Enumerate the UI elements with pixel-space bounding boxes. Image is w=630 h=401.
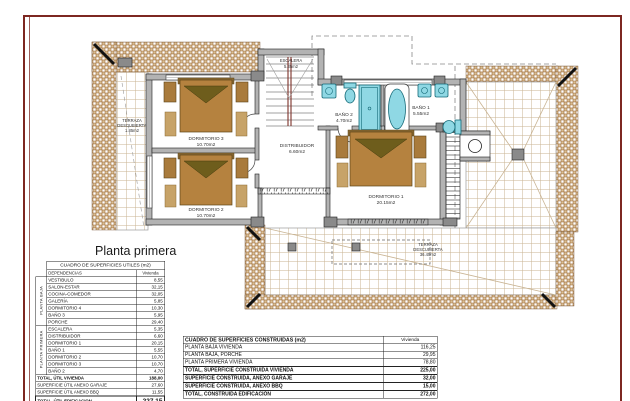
- utiles-body: PLANTA BAJAVESTIBULO8,55SALON-ESTAR32,15…: [36, 277, 165, 375]
- room-label-dormitorio2: DORMITORIO 2: [188, 207, 223, 213]
- table-row: DORMITORIO 310,70: [36, 361, 165, 368]
- room-label-bano2: BAÑO 2: [335, 111, 353, 118]
- sink-symbol: [322, 84, 336, 98]
- wall-niche: [460, 131, 490, 161]
- table-row: BAÑO 35,95: [36, 312, 165, 319]
- table-row: DISTRIBUIDOR6,60: [36, 333, 165, 340]
- table-row: SALON-ESTAR32,15: [36, 284, 165, 291]
- table-row: COCINA-COMEDOR32,05: [36, 291, 165, 298]
- svg-text:10.70m2: 10.70m2: [197, 142, 216, 148]
- table-row: PLANTA PRIMERA VIVIENDA78,80: [183, 359, 437, 367]
- nightstand-symbol: [414, 136, 426, 158]
- room-label-distribuidor: DISTRIBUIDOR: [280, 143, 315, 149]
- nightstand-symbol: [164, 158, 176, 178]
- staircase: ESCALERA 5.35m2: [266, 57, 314, 126]
- svg-text:4.70m2: 4.70m2: [336, 118, 352, 124]
- table-row: PLANTA BAJAVESTIBULO8,55: [36, 277, 165, 284]
- utiles-title: CUADRO DE SUPERFICIES UTILES (m2): [47, 261, 165, 270]
- svg-text:5.55m2: 5.55m2: [413, 111, 429, 117]
- louvre-window: [348, 219, 428, 225]
- table-row: PORCHE29,40: [36, 319, 165, 326]
- table-row: PLANTA BAJA VIVIENDA116,25: [183, 344, 437, 352]
- nightstand-symbol: [236, 158, 248, 178]
- construidas-body: PLANTA BAJA VIVIENDA116,25PLANTA BAJA, P…: [183, 344, 437, 399]
- svg-text:1.85m2: 1.85m2: [125, 128, 140, 133]
- table-row: DORMITORIO 410,30: [36, 305, 165, 312]
- table-row: TOTAL, SUPERFICIE CONSTRUIDA VIVIENDA225…: [183, 367, 437, 375]
- table-row: SUPERFICIE ÚTIL ANEXO GARAJE27,60: [36, 382, 165, 389]
- terrace-bottom: TERRAZA DESCUBIERTA 36.45m2: [245, 225, 574, 309]
- column-base: [352, 243, 360, 251]
- louvre-window: [258, 188, 330, 194]
- svg-text:6.60m2: 6.60m2: [289, 149, 305, 155]
- nightstand-symbol: [164, 82, 176, 102]
- table-row: TOTAL, ÚTIL EDIFICACION227,15: [36, 396, 165, 401]
- svg-text:36.45m2: 36.45m2: [420, 252, 437, 257]
- svg-text:20.15m2: 20.15m2: [377, 200, 396, 206]
- table-row: BAÑO 24,70: [36, 368, 165, 375]
- room-label-dormitorio1: DORMITORIO 1: [368, 194, 403, 200]
- column-base: [288, 243, 296, 251]
- nightstand-symbol: [236, 82, 248, 102]
- svg-text:10.70m2: 10.70m2: [197, 213, 216, 219]
- construidas-col-vivienda: Vivienda: [383, 336, 437, 344]
- utiles-col-dependencias: DEPENDENCIAS: [47, 270, 137, 277]
- chimney-symbol: [512, 149, 524, 160]
- table-row: BAÑO 15,55: [36, 347, 165, 354]
- utiles-totals: TOTAL, ÚTIL VIVIENDA188,00SUPERFICIE ÚTI…: [36, 375, 165, 401]
- room-label-dormitorio3: DORMITORIO 3: [188, 136, 223, 142]
- drawing-sheet: TERRAZA DESCUBIERTA 1.85m2: [0, 0, 630, 401]
- table-superficies-utiles: CUADRO DE SUPERFICIES UTILES (m2) DEPEND…: [35, 261, 165, 401]
- table-row: SUPERFICIE CONSTRUIDA, ANEXO GARAJE32,00: [183, 375, 437, 383]
- room-label-bano1: BAÑO 1: [412, 104, 430, 111]
- floor-group-label: PLANTA BAJA: [36, 277, 47, 326]
- toilet-symbol: [455, 120, 461, 134]
- table-row: GALERÍA5,85: [36, 298, 165, 305]
- table-row: DORMITORIO 120,15: [36, 340, 165, 347]
- table-superficies-construidas: CUADRO DE SUPERFICIES CONSTRUIDAS (m2) V…: [183, 336, 438, 399]
- plan-title: Planta primera: [95, 244, 176, 258]
- svg-text:5.35m2: 5.35m2: [284, 64, 299, 69]
- floor-group-label: PLANTA PRIMERA: [36, 326, 47, 375]
- sink-symbol: [418, 84, 431, 97]
- table-row: SUPERFICIE CONSTRUIDA, ANEXO BBQ15,00: [183, 383, 437, 391]
- construidas-title: CUADRO DE SUPERFICIES CONSTRUIDAS (m2): [183, 336, 383, 344]
- toilet-symbol: [344, 83, 356, 88]
- sink-symbol: [435, 84, 448, 97]
- utiles-col-vivienda: Vivienda: [137, 270, 165, 277]
- table-row: TOTAL, CONSTRUIDA EDIFICACIÓN272,00: [183, 391, 437, 399]
- table-row: SUPERFICIE ÚTIL ANEXO BBQ11,55: [36, 389, 165, 396]
- table-row: PLANTA BAJA, PORCHE29,95: [183, 351, 437, 359]
- nightstand-symbol: [336, 136, 348, 158]
- table-row: DORMITORIO 210,70: [36, 354, 165, 361]
- room-label-escalera: ESCALERA: [280, 58, 303, 63]
- shower-symbol: [359, 85, 380, 132]
- table-row: PLANTA PRIMERAESCALERA5,35: [36, 326, 165, 333]
- table-row: TOTAL, ÚTIL VIVIENDA188,00: [36, 375, 165, 382]
